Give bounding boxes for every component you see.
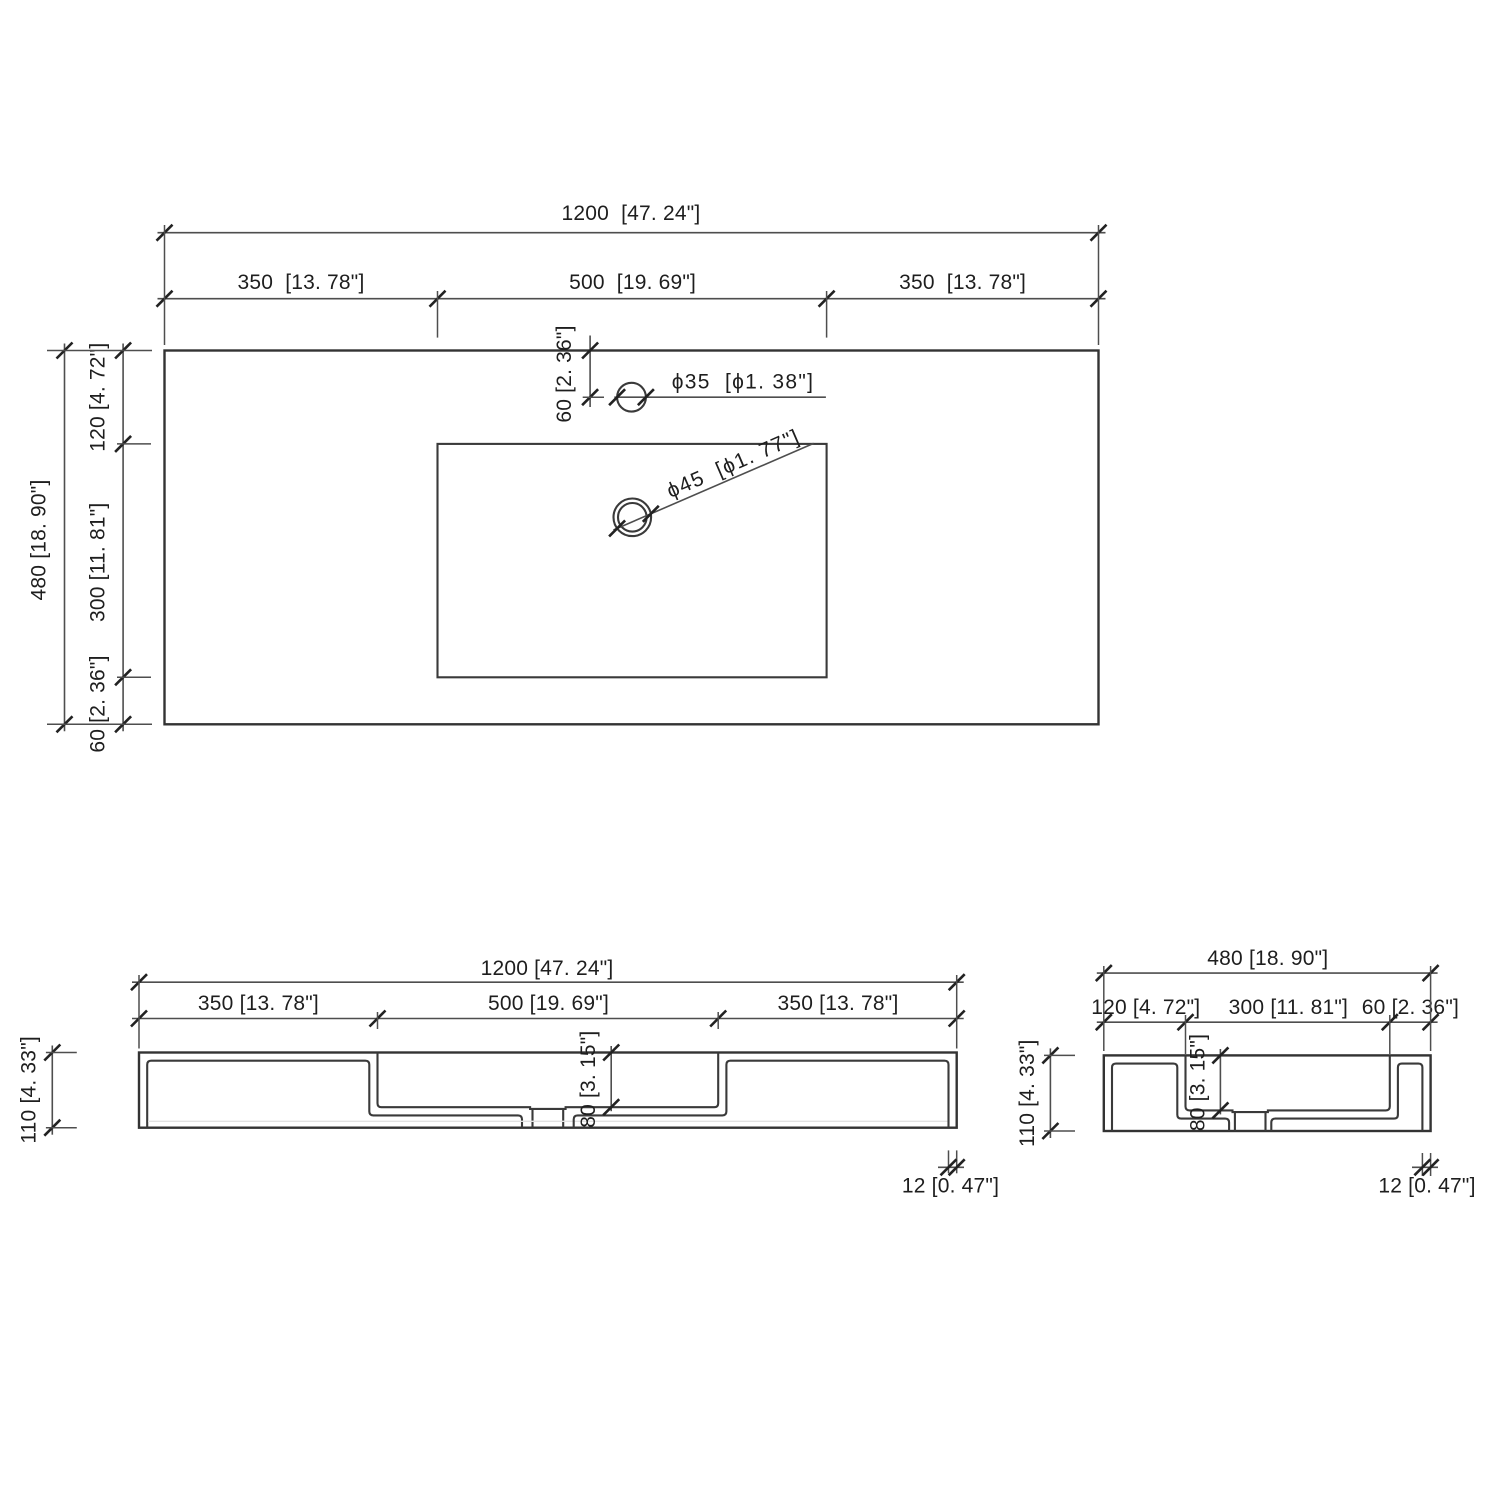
- svg-text:60 [2. 36"]: 60 [2. 36"]: [553, 325, 576, 422]
- svg-text:ϕ35 [ϕ1. 38"]: ϕ35 [ϕ1. 38"]: [672, 371, 815, 394]
- svg-text:120 [4. 72"]: 120 [4. 72"]: [1091, 996, 1200, 1019]
- svg-text:300 [11. 81"]: 300 [11. 81"]: [1229, 996, 1348, 1019]
- svg-text:500 [19. 69"]: 500 [19. 69"]: [488, 992, 609, 1015]
- svg-text:12 [0. 47"]: 12 [0. 47"]: [902, 1174, 999, 1197]
- svg-text:60 [2. 36"]: 60 [2. 36"]: [87, 655, 110, 752]
- svg-text:80 [3. 15"]: 80 [3. 15"]: [1187, 1034, 1210, 1131]
- svg-text:480 [18. 90"]: 480 [18. 90"]: [28, 480, 51, 601]
- svg-text:12 [0. 47"]: 12 [0. 47"]: [1378, 1174, 1475, 1197]
- svg-text:80 [3. 15"]: 80 [3. 15"]: [577, 1031, 600, 1128]
- svg-text:110 [4. 33"]: 110 [4. 33"]: [1016, 1039, 1039, 1147]
- svg-text:110 [4. 33"]: 110 [4. 33"]: [18, 1036, 41, 1144]
- svg-text:350 [13. 78"]: 350 [13. 78"]: [899, 271, 1026, 294]
- svg-text:350 [13. 78"]: 350 [13. 78"]: [237, 271, 364, 294]
- svg-text:1200 [47. 24"]: 1200 [47. 24"]: [481, 957, 614, 980]
- svg-text:1200 [47. 24"]: 1200 [47. 24"]: [562, 202, 701, 225]
- svg-text:300 [11. 81"]: 300 [11. 81"]: [87, 503, 110, 622]
- svg-text:480 [18. 90"]: 480 [18. 90"]: [1207, 947, 1328, 970]
- svg-text:120 [4. 72"]: 120 [4. 72"]: [87, 343, 110, 452]
- svg-text:350 [13. 78"]: 350 [13. 78"]: [778, 992, 899, 1015]
- svg-text:350 [13. 78"]: 350 [13. 78"]: [198, 992, 319, 1015]
- svg-text:60 [2. 36"]: 60 [2. 36"]: [1362, 996, 1459, 1019]
- svg-text:500 [19. 69"]: 500 [19. 69"]: [569, 271, 696, 294]
